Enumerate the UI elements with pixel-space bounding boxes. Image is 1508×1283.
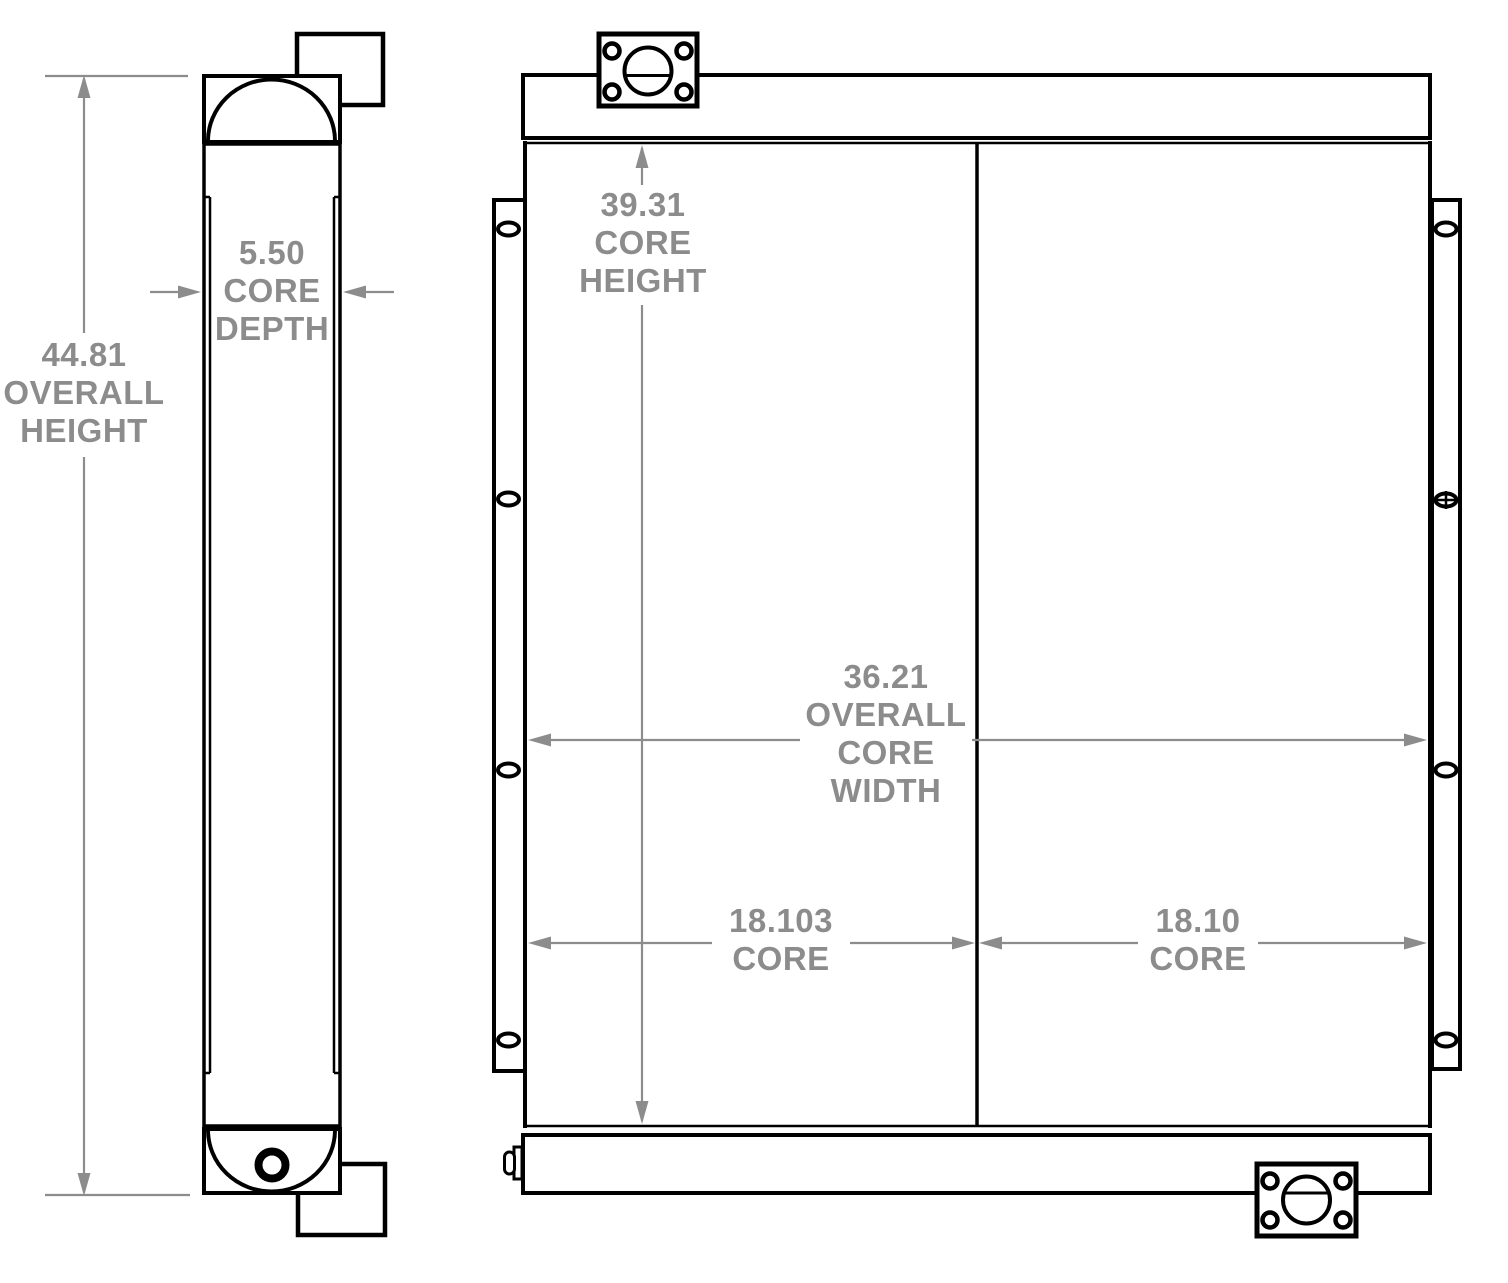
overall-core-width-label: 36.21 OVERALL CORE WIDTH [756, 658, 1016, 810]
core-depth-label: 5.50 CORE DEPTH [142, 234, 402, 348]
side-bottom-port [259, 1152, 286, 1179]
arrowhead-up [78, 75, 91, 98]
drain-plug-cap [505, 1152, 515, 1174]
dimension-text: CORE [142, 272, 402, 310]
bracket-right-plate [1432, 200, 1460, 1069]
bracket-slot [1436, 764, 1457, 777]
dimension-text: CORE [756, 734, 1016, 772]
dimension-text: OVERALL [0, 374, 214, 412]
dimension-text: HEIGHT [0, 412, 214, 450]
bracket-slot [1436, 223, 1457, 236]
front-top-flange [599, 34, 697, 106]
arrowhead-right [952, 937, 975, 950]
side-top-tank [204, 76, 340, 142]
side-view [204, 34, 385, 1235]
dimension-value: 36.21 [756, 658, 1016, 696]
bracket-slot [498, 493, 519, 506]
dimension-value: 5.50 [142, 234, 402, 272]
dimension-text: OVERALL [756, 696, 1016, 734]
drain-plug [505, 1147, 523, 1179]
dimension-text: WIDTH [756, 772, 1016, 810]
overall-height-label: 44.81 OVERALL HEIGHT [0, 336, 214, 450]
dimension-value: 18.103 [651, 902, 911, 940]
dimension-text: CORE [651, 940, 911, 978]
arrowhead-right [1404, 734, 1427, 747]
arrowhead-up [636, 145, 649, 168]
bracket-left-plate [494, 200, 525, 1071]
dimension-text: CORE [513, 224, 773, 262]
core-height-label: 39.31 CORE HEIGHT [513, 186, 773, 300]
dimension-value: 39.31 [513, 186, 773, 224]
arrowhead-left [979, 937, 1002, 950]
dimension-text: DEPTH [142, 310, 402, 348]
bracket-slot [498, 1034, 519, 1047]
dimension-text: CORE [1068, 940, 1328, 978]
arrowhead-down [636, 1101, 649, 1124]
core-width-left-label: 18.103 CORE [651, 902, 911, 978]
arrowhead-down [78, 1173, 91, 1196]
front-bottom-flange [1257, 1164, 1356, 1236]
dimension-text: HEIGHT [513, 262, 773, 300]
arrowhead-left [528, 734, 551, 747]
bracket-slot [498, 764, 519, 777]
technical-drawing-page: 44.81 OVERALL HEIGHT 5.50 CORE DEPTH 39.… [0, 0, 1508, 1283]
arrowhead-left [528, 937, 551, 950]
arrowhead-right [1404, 937, 1427, 950]
mounting-bracket-left [494, 200, 525, 1071]
bracket-slot [1436, 1034, 1457, 1047]
dimension-value: 18.10 [1068, 902, 1328, 940]
core-width-right-label: 18.10 CORE [1068, 902, 1328, 978]
mounting-bracket-right [1432, 200, 1460, 1069]
